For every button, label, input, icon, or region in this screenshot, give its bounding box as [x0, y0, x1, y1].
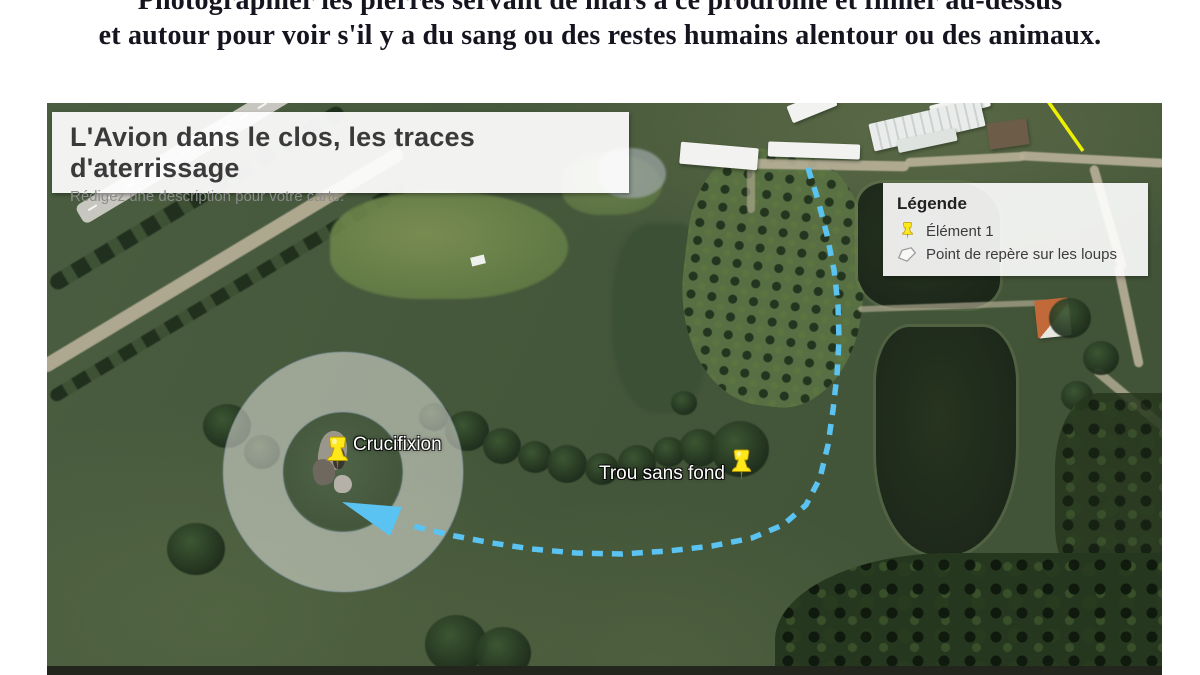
tree	[1083, 341, 1119, 375]
tree	[1049, 298, 1091, 338]
shed	[986, 118, 1029, 149]
map-bottom-border	[47, 666, 1162, 675]
scrub-patch	[330, 191, 568, 299]
tree	[203, 404, 251, 448]
pin-trou-sans-fond[interactable]	[729, 449, 754, 482]
rock	[334, 475, 352, 493]
legend-title: Légende	[897, 194, 1136, 214]
tree	[167, 523, 225, 575]
map-title: L'Avion dans le clos, les traces d'aterr…	[70, 122, 629, 184]
pushpin-icon	[328, 437, 348, 461]
pond-lower	[876, 327, 1016, 555]
barn-roof	[768, 141, 860, 159]
legend-panel: Légende Élément 1 Point de repère sur le…	[883, 183, 1148, 276]
document-text: Photographier les pierres servant de mar…	[0, 0, 1200, 53]
pushpin-highlight	[332, 439, 337, 445]
document-line-1: Photographier les pierres servant de mar…	[0, 0, 1200, 18]
yellow-line[interactable]	[1045, 103, 1083, 151]
barn-roof	[679, 142, 759, 171]
pin-crucifixion[interactable]	[324, 436, 351, 472]
legend-item-element-1[interactable]: Élément 1	[897, 222, 1136, 240]
pushpin-needle	[337, 460, 339, 471]
pushpin-needle	[741, 471, 743, 481]
island-grass	[285, 414, 401, 530]
label-trou-sans-fond[interactable]: Trou sans fond	[567, 463, 725, 485]
pushpin-icon	[732, 450, 750, 472]
document-line-2: et autour pour voir s'il y a du sang ou …	[0, 18, 1200, 53]
map-title-card[interactable]: L'Avion dans le clos, les traces d'aterr…	[52, 112, 629, 193]
legend-item-label: Point de repère sur les loups	[926, 246, 1117, 263]
map-description-placeholder: Rédigez une description pour votre carte…	[70, 188, 629, 205]
tree	[671, 391, 697, 415]
label-crucifixion[interactable]: Crucifixion	[353, 434, 442, 456]
field-path	[747, 165, 755, 213]
legend-item-label: Élément 1	[926, 223, 994, 240]
tree	[483, 428, 521, 464]
pushpin-highlight	[737, 451, 741, 457]
farm-road	[905, 152, 1025, 167]
barn-roof	[786, 103, 837, 123]
tree	[244, 435, 280, 469]
legend-item-landmark[interactable]: Point de repère sur les loups	[897, 246, 1136, 263]
map-canvas[interactable]: Crucifixion Trou sans fond L'Avion dans …	[47, 103, 1162, 675]
polygon-icon	[897, 246, 917, 263]
forest	[775, 553, 1162, 675]
pushpin-icon	[897, 222, 917, 240]
